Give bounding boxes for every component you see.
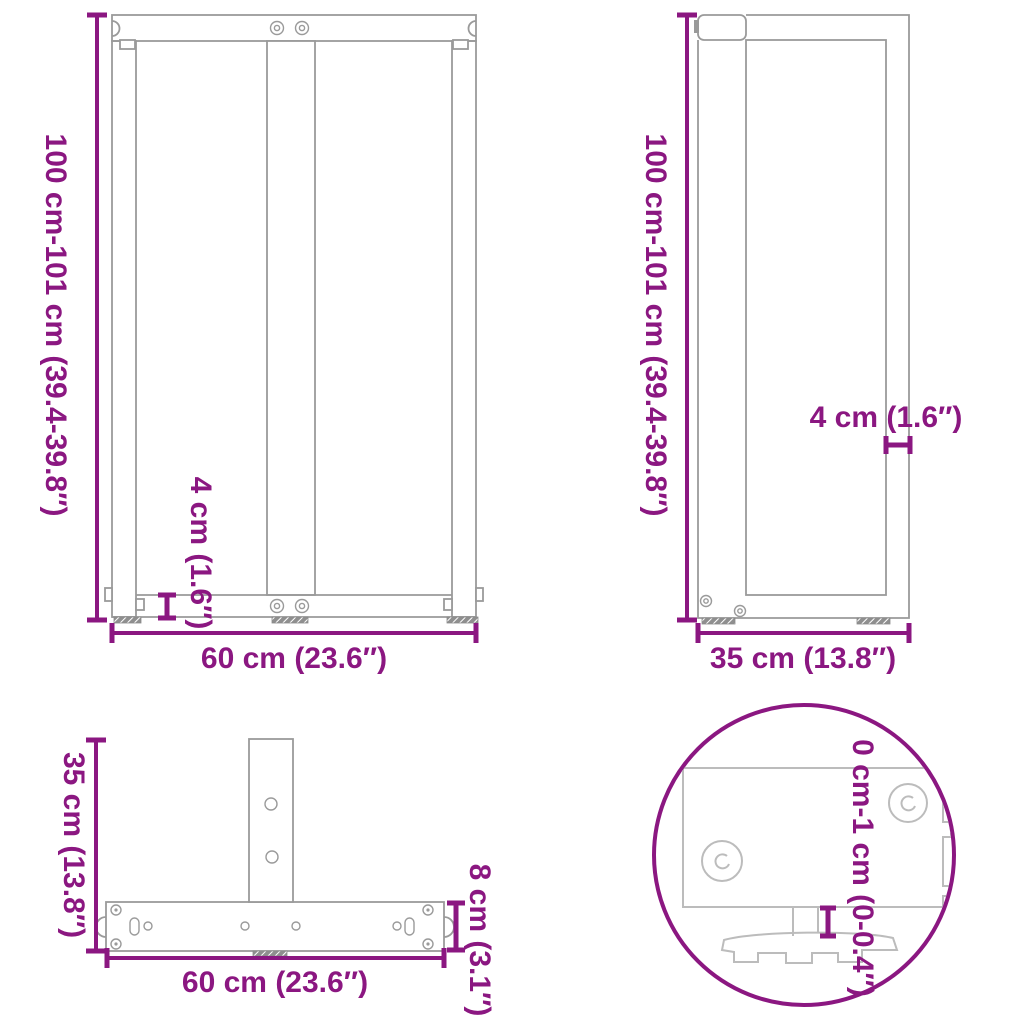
side-front-foot-pad [702,618,735,624]
side-depth-label: 35 cm (13.8″) [710,642,896,675]
front-foot-screws [271,600,309,613]
front-left-bottom-tab [136,599,144,610]
side-outer-outline [698,15,909,618]
top-right-foot-bump [444,917,454,937]
detail-screw-boss-1 [889,784,927,822]
front-left-outer-clip [105,588,112,601]
front-width-dimension: 60 cm (23.6″) [112,623,476,675]
front-plate-screws [271,22,309,35]
detail-adjustment-dimension: 0 cm-1 cm (0-0.4″) [820,739,879,997]
front-center-column [267,41,315,595]
dimension-diagram: 100 cm-101 cm (39.4-39.8″) 60 cm (23.6″)… [0,0,1024,1024]
top-right-slot [405,918,414,935]
top-width-label: 60 cm (23.6″) [182,966,368,999]
top-bar-width-dimension: 8 cm (3.1″) [447,864,496,1017]
front-left-clip [120,40,135,49]
top-bar-width-label: 8 cm (3.1″) [463,864,496,1017]
front-left-foot-pad [114,617,141,623]
side-column-cap [698,15,746,40]
front-center-foot-pad [272,617,308,623]
front-height-label: 100 cm-101 cm (39.4-39.8″) [39,134,72,517]
top-corner-screws [111,905,433,949]
side-foot-screws [701,596,746,617]
side-view: 100 cm-101 cm (39.4-39.8″) 35 cm (13.8″)… [639,15,962,675]
detail-screw-mark-1 [902,796,915,810]
front-view: 100 cm-101 cm (39.4-39.8″) 60 cm (23.6″)… [39,15,483,675]
detail-screw-boss-2 [702,841,742,881]
front-width-label: 60 cm (23.6″) [201,642,387,675]
top-left-slot [130,918,139,935]
side-rear-foot-pad [857,618,890,624]
side-height-dimension: 100 cm-101 cm (39.4-39.8″) [639,15,697,620]
side-view-drawing [694,15,909,624]
side-height-label: 100 cm-101 cm (39.4-39.8″) [639,134,672,517]
detail-screw-mark-2 [716,854,729,868]
top-foot-bar [249,739,293,902]
detail-circle-border [654,705,954,1005]
front-right-clip [453,40,468,49]
front-plate-right-notch [469,21,476,36]
front-top-plate [112,15,476,41]
front-plate-left-notch [112,21,120,36]
detail-view: 0 cm-1 cm (0-0.4″) [654,705,954,1005]
side-inner-panel [746,40,886,595]
front-left-column [112,41,136,617]
front-right-column [452,41,476,617]
front-right-foot-pad [447,617,478,623]
top-plate-holes [144,922,401,930]
front-height-dimension: 100 cm-101 cm (39.4-39.8″) [39,15,107,620]
top-center-foot-pad [253,951,287,956]
diagram-canvas: 100 cm-101 cm (39.4-39.8″) 60 cm (23.6″)… [0,0,1024,1024]
detail-bar-corner [683,768,951,907]
top-depth-label: 35 cm (13.8″) [57,752,90,938]
front-thickness-dimension: 4 cm (1.6″) [158,477,217,630]
front-right-bottom-tab [444,599,452,610]
side-thickness-dimension: 4 cm (1.6″) [810,401,963,454]
side-depth-dimension: 35 cm (13.8″) [698,623,909,675]
front-view-drawing [105,15,483,623]
top-view-drawing [96,739,454,956]
detail-drawing [683,768,951,963]
front-right-outer-clip [476,588,483,601]
detail-adjustment-label: 0 cm-1 cm (0-0.4″) [846,739,879,997]
side-thickness-label: 4 cm (1.6″) [810,401,963,434]
side-edge-tab [694,20,699,33]
top-view: 35 cm (13.8″) 60 cm (23.6″) 8 cm (3.1″) [57,739,496,1016]
front-thickness-label: 4 cm (1.6″) [184,477,217,630]
